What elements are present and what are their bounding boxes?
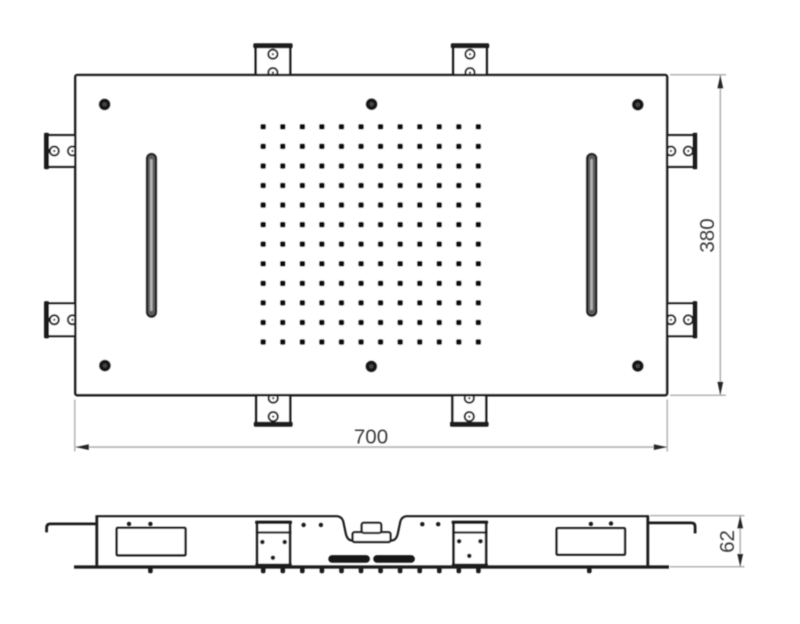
svg-text:700: 700 <box>354 426 388 449</box>
svg-text:62: 62 <box>716 530 739 553</box>
svg-text:380: 380 <box>696 218 719 252</box>
